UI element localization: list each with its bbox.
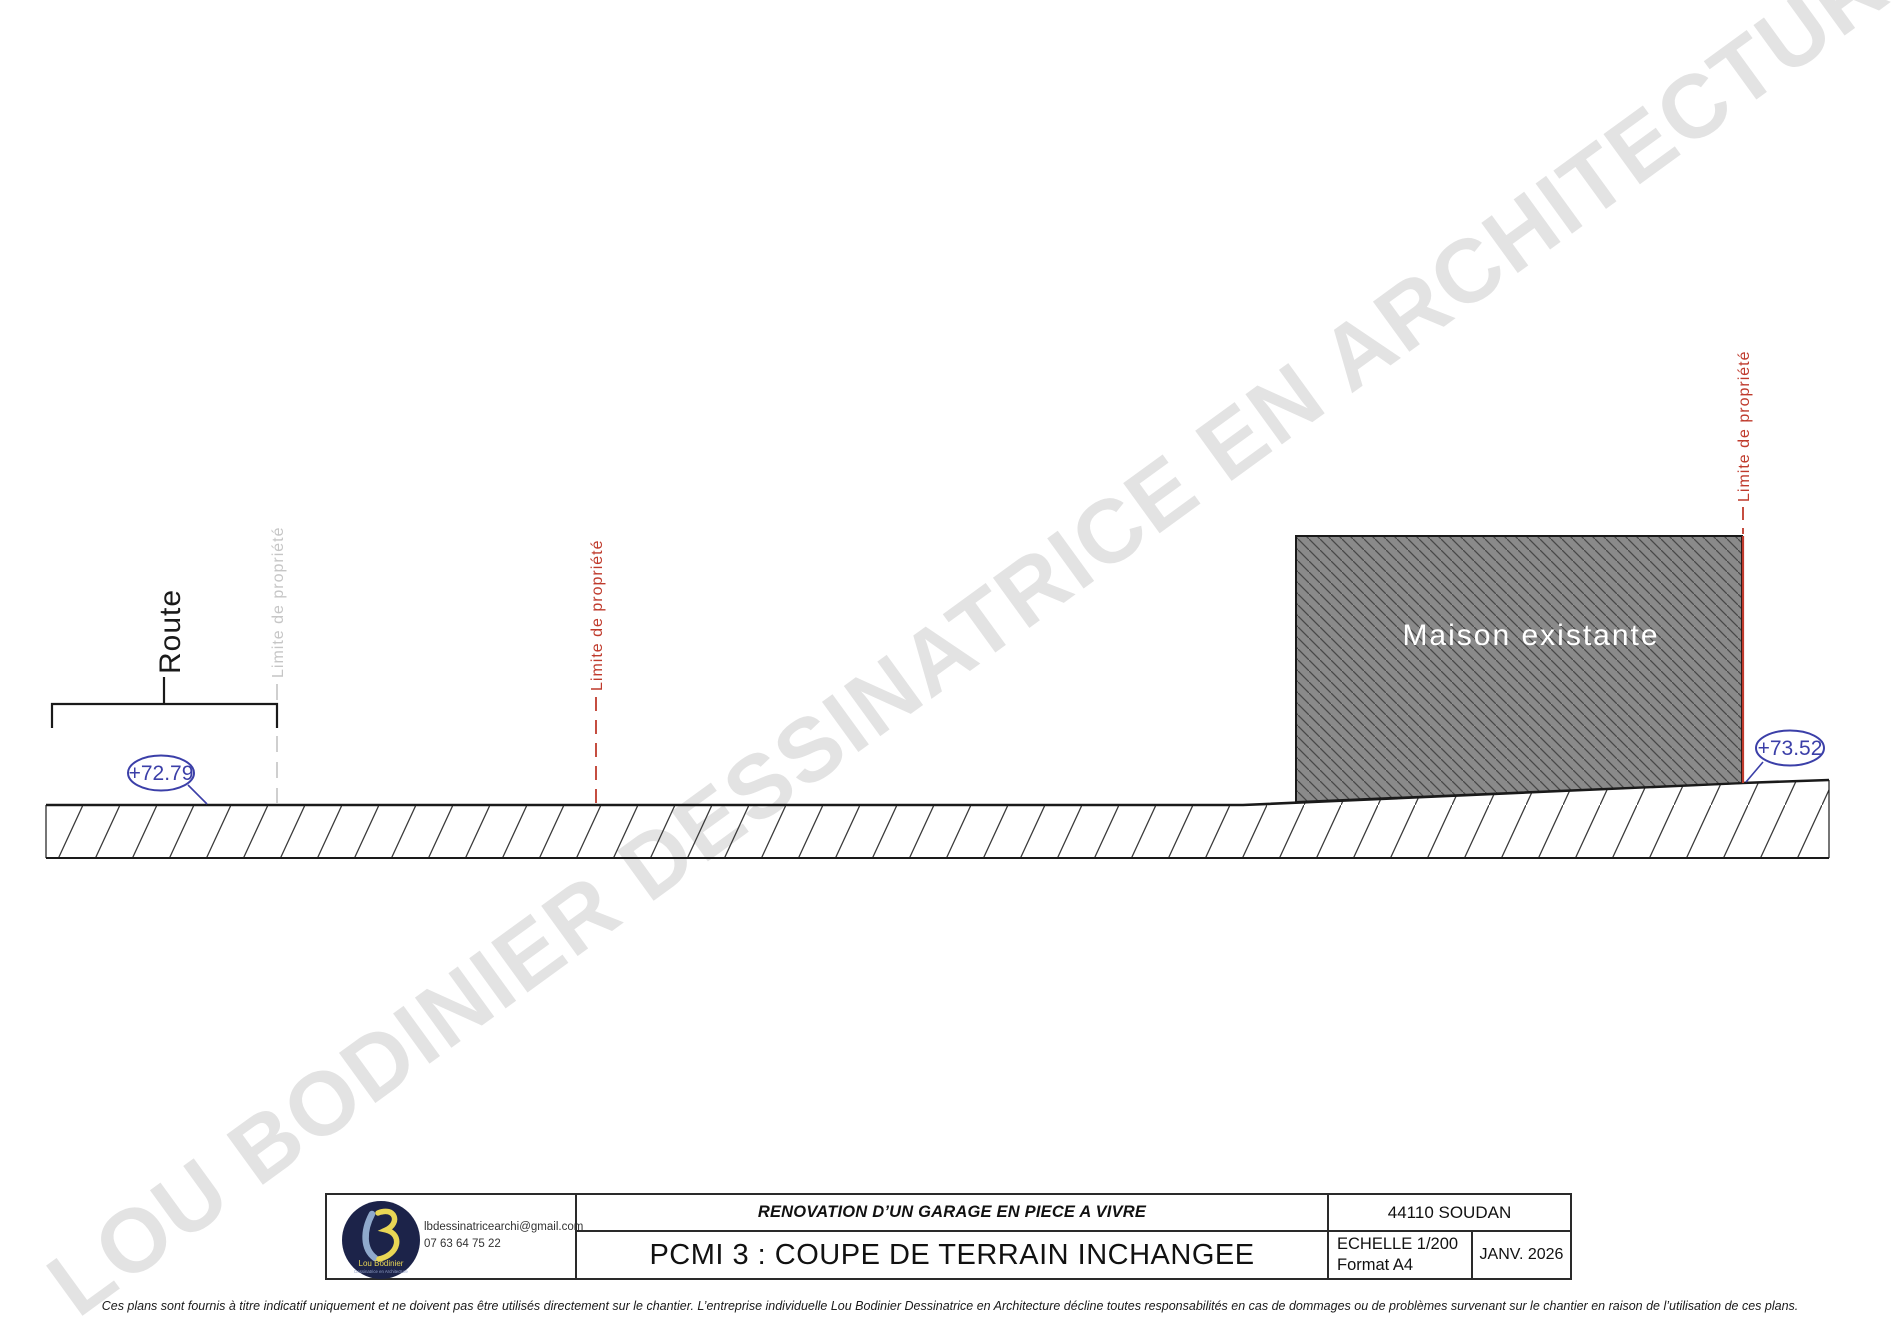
title-block-center-cell: RENOVATION D’UN GARAGE EN PIECE A VIVRE … (575, 1195, 1327, 1278)
scale-label: ECHELLE 1/200 (1337, 1234, 1471, 1255)
elevation-marker-left: +72.79 (128, 756, 207, 805)
logo-name: Lou Bodinier (359, 1259, 404, 1268)
route-annotation: Route (52, 589, 277, 728)
title-block-logo-cell: Lou Bodinier Dessinatrice en Architectur… (327, 1195, 575, 1278)
scale-date-row: ECHELLE 1/200 Format A4 JANV. 2026 (1329, 1232, 1570, 1278)
property-limit-red-right-label: Limite de propriété (1736, 350, 1753, 502)
logo-subtitle: Dessinatrice en Architecture (354, 1269, 408, 1274)
house-hatch (1296, 536, 1742, 802)
city-row: 44110 SOUDAN (1329, 1195, 1570, 1232)
date-label: JANV. 2026 (1480, 1246, 1564, 1264)
elevation-right-value: +73.52 (1758, 737, 1823, 760)
title-block: Lou Bodinier Dessinatrice en Architectur… (325, 1193, 1572, 1280)
contact-info: lbdessinatricearchi@gmail.com 07 63 64 7… (424, 1219, 583, 1253)
contact-phone: 07 63 64 75 22 (424, 1236, 583, 1253)
date-cell: JANV. 2026 (1473, 1232, 1570, 1278)
elevation-marker-right: +73.52 (1746, 731, 1824, 783)
elevation-right-leader (1746, 762, 1763, 782)
project-title: RENOVATION D’UN GARAGE EN PIECE A VIVRE (758, 1203, 1146, 1222)
elevation-left-leader (188, 785, 207, 804)
contact-email: lbdessinatricearchi@gmail.com (424, 1219, 583, 1236)
disclaimer-text: Ces plans sont fournis à titre indicatif… (0, 1299, 1900, 1313)
property-limit-red-mid-label: Limite de propriété (589, 539, 606, 691)
sheet-title: PCMI 3 : COUPE DE TERRAIN INCHANGEE (649, 1239, 1254, 1272)
sheet-title-row: PCMI 3 : COUPE DE TERRAIN INCHANGEE (577, 1232, 1327, 1278)
route-bracket (52, 704, 277, 728)
existing-house: Maison existante (1296, 536, 1742, 802)
city-label: 44110 SOUDAN (1388, 1203, 1511, 1223)
project-title-row: RENOVATION D’UN GARAGE EN PIECE A VIVRE (577, 1195, 1327, 1232)
scale-cell: ECHELLE 1/200 Format A4 (1329, 1232, 1473, 1278)
terrain-section-drawing: Maison existante Limite de propriété Lim… (0, 0, 1900, 1343)
company-logo: Lou Bodinier Dessinatrice en Architectur… (342, 1201, 420, 1279)
property-limit-red-mid: Limite de propriété (589, 539, 606, 803)
property-limit-gray-label: Limite de propriété (270, 526, 287, 678)
route-label: Route (154, 589, 187, 674)
terrain-ground (46, 780, 1829, 858)
elevation-left-value: +72.79 (129, 762, 194, 785)
paper-format-label: Format A4 (1337, 1255, 1471, 1276)
plan-sheet: { "watermark": { "text": "LOU BODINIER D… (0, 0, 1900, 1343)
house-label: Maison existante (1402, 619, 1659, 652)
title-block-right-cell: 44110 SOUDAN ECHELLE 1/200 Format A4 JAN… (1327, 1195, 1570, 1278)
property-limit-gray: Limite de propriété (270, 526, 287, 803)
